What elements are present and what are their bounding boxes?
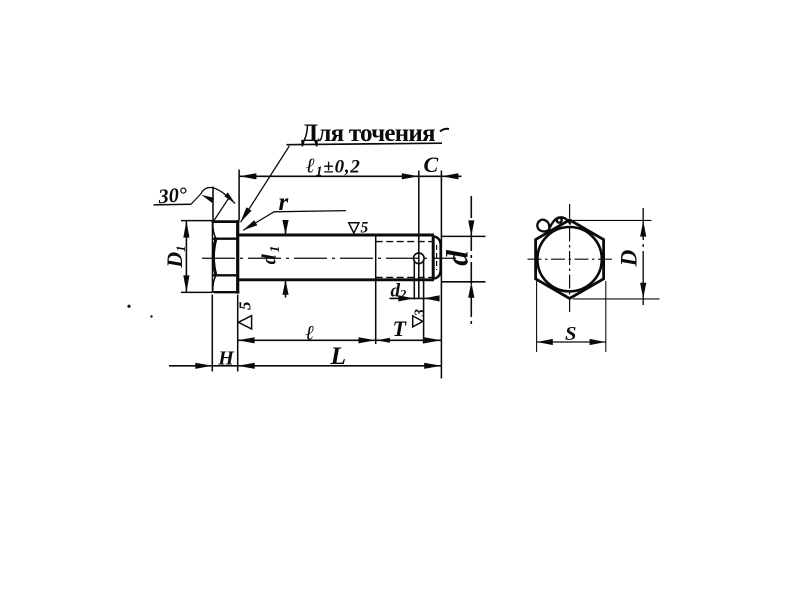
- svg-text:D: D: [616, 249, 641, 267]
- svg-text:ℓ1±0,2: ℓ1±0,2: [306, 154, 361, 179]
- svg-text:r: r: [279, 189, 289, 216]
- svg-text:30°: 30°: [157, 184, 189, 209]
- svg-text:Для точения: Для точения: [301, 120, 436, 147]
- svg-text:C: C: [424, 152, 439, 177]
- svg-text:H: H: [217, 348, 235, 370]
- svg-text:T: T: [393, 316, 408, 341]
- svg-text:d: d: [440, 250, 475, 266]
- svg-text:L: L: [330, 341, 347, 370]
- svg-text:5: 5: [361, 220, 369, 237]
- svg-text:3: 3: [412, 309, 428, 317]
- svg-text:5: 5: [236, 301, 255, 310]
- svg-text:ℓ: ℓ: [306, 323, 315, 345]
- svg-text:S: S: [565, 323, 576, 345]
